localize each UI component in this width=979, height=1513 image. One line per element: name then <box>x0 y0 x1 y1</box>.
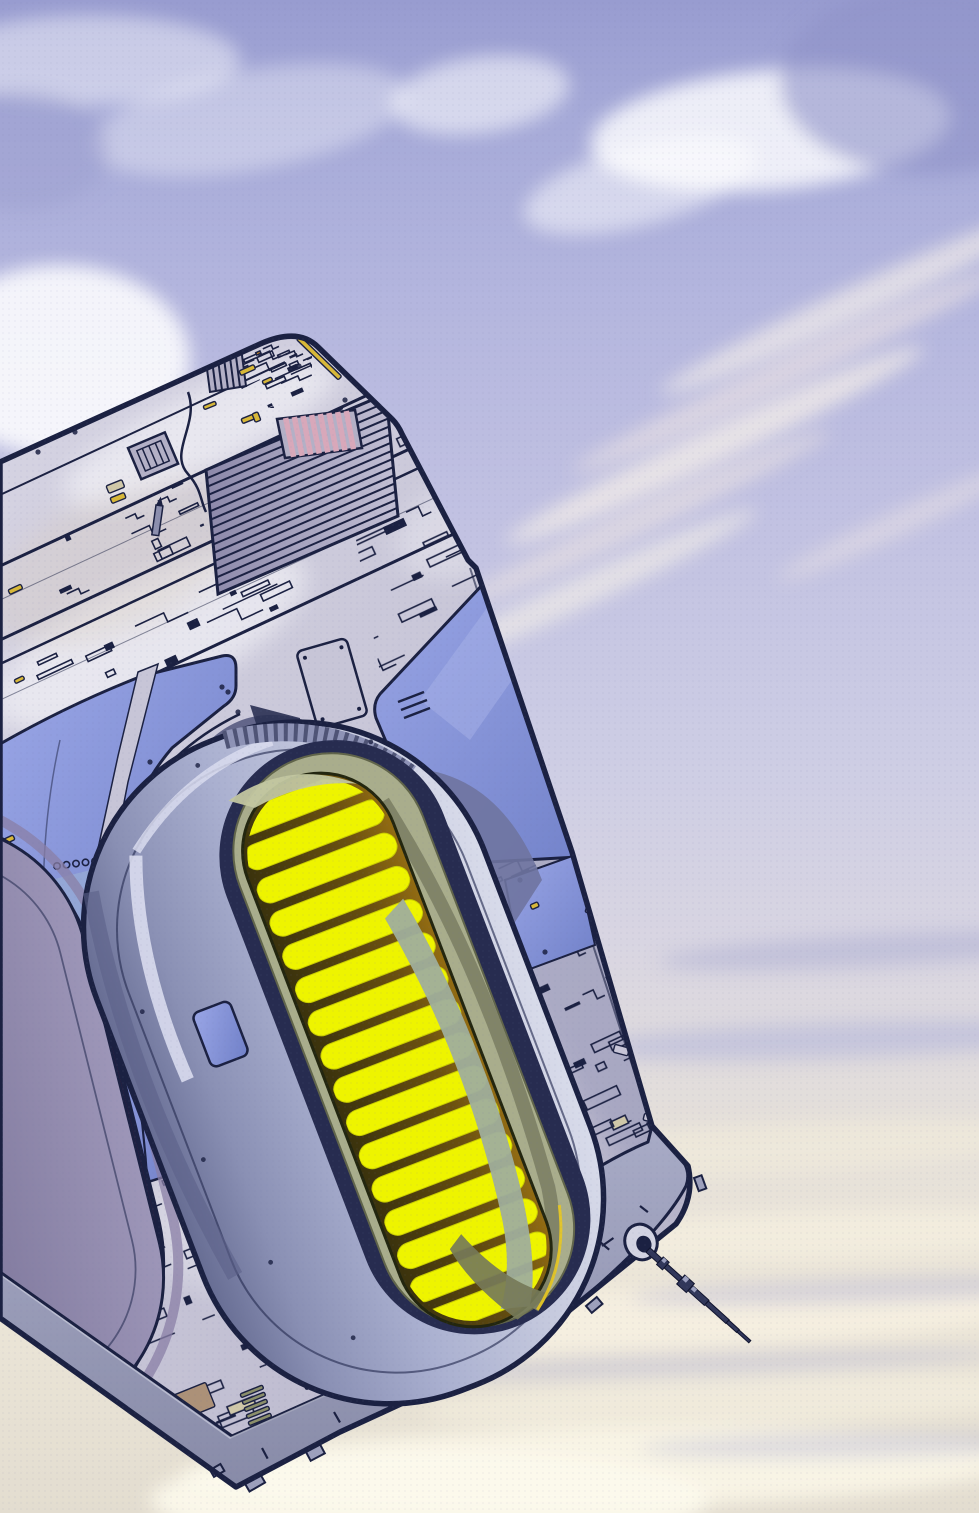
comic-page <box>0 0 979 1513</box>
illustration-canvas <box>0 0 979 1513</box>
halftone-texture <box>0 0 979 1513</box>
